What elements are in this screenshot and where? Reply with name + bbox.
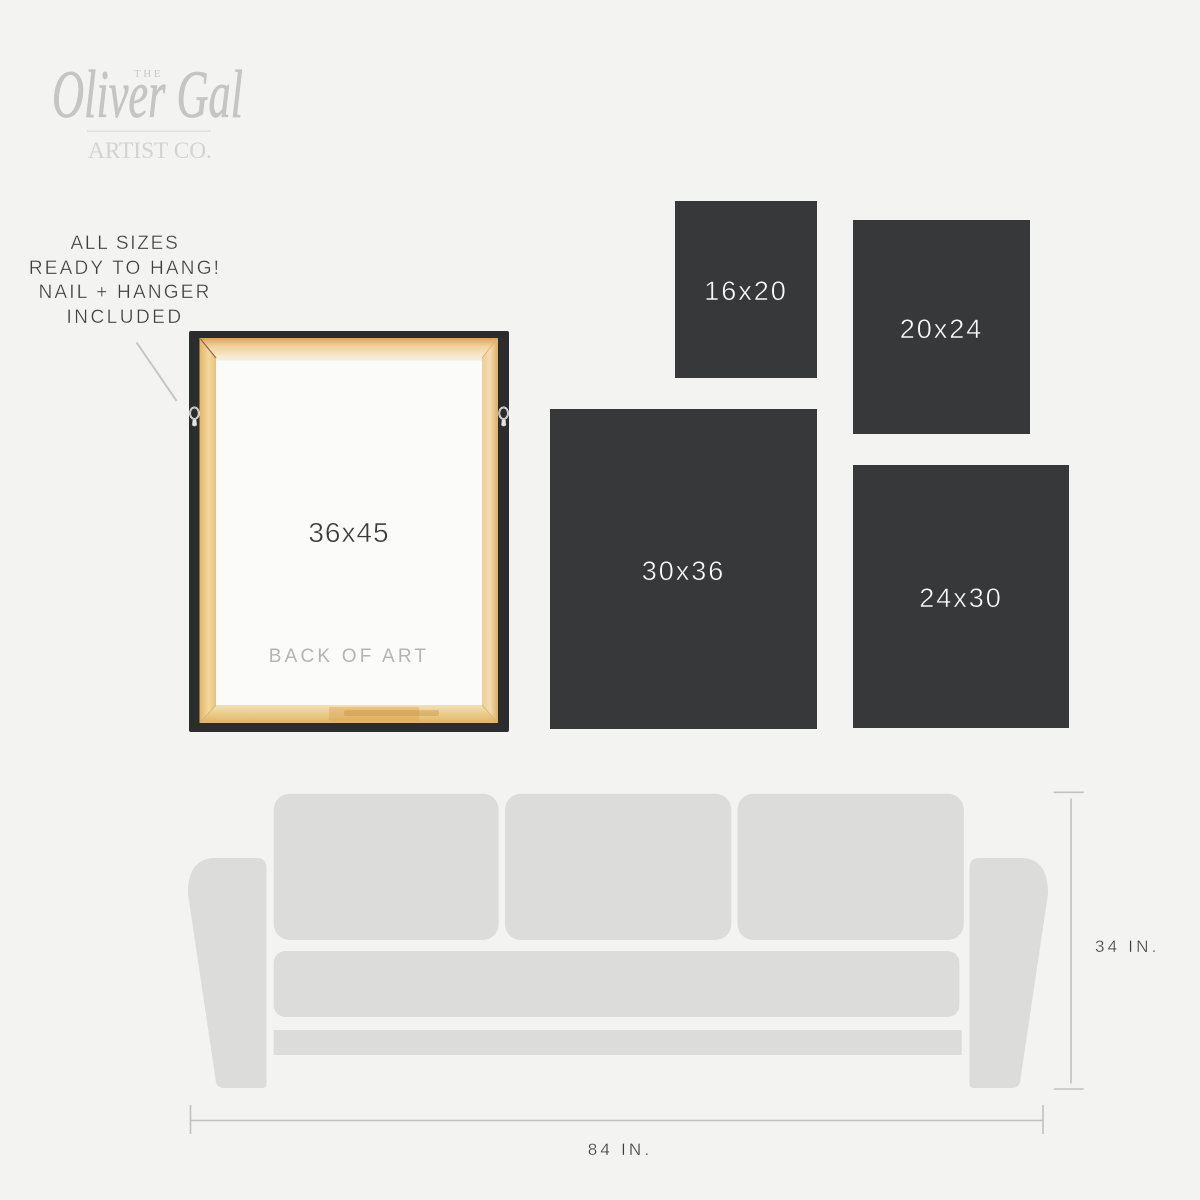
svg-text:ARTIST CO.: ARTIST CO.: [88, 138, 212, 163]
svg-text:Oliver Gal: Oliver Gal: [52, 56, 243, 132]
